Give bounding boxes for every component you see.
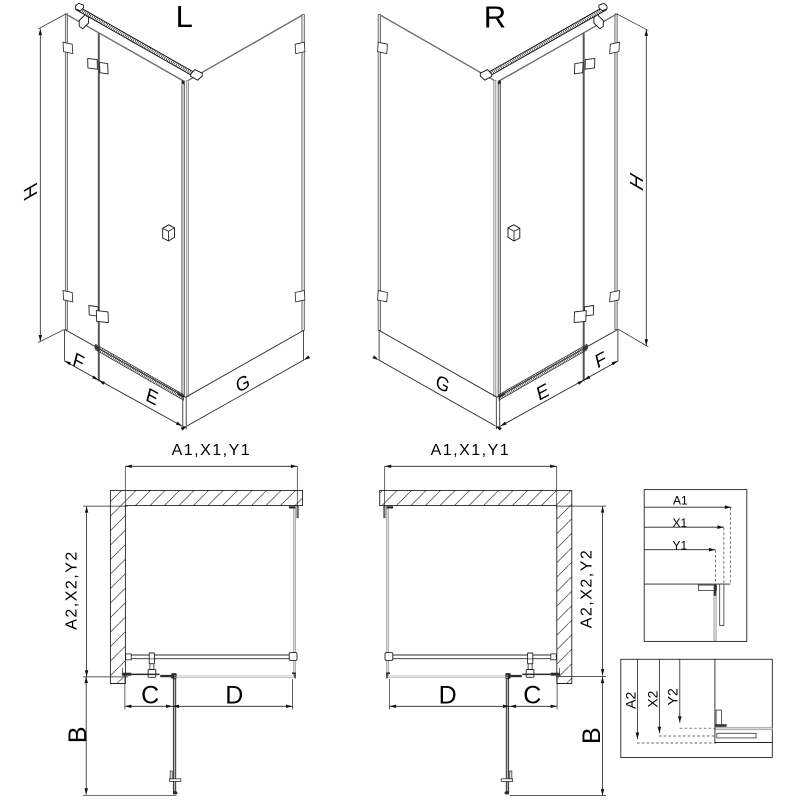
svg-text:C: C: [523, 682, 541, 710]
svg-text:E: E: [535, 380, 551, 406]
svg-text:A2: A2: [622, 692, 638, 709]
svg-text:Y2: Y2: [664, 688, 680, 705]
svg-text:B: B: [64, 726, 92, 743]
svg-text:F: F: [593, 348, 608, 374]
svg-text:G: G: [433, 371, 451, 398]
svg-text:A1,X1,Y1: A1,X1,Y1: [431, 442, 511, 459]
svg-text:A1,X1,Y1: A1,X1,Y1: [172, 442, 252, 459]
svg-text:E: E: [144, 384, 160, 410]
svg-text:H: H: [626, 169, 647, 195]
svg-text:X1: X1: [673, 516, 688, 530]
svg-text:A1: A1: [673, 494, 688, 508]
svg-text:D: D: [439, 682, 457, 710]
svg-text:Y1: Y1: [673, 538, 688, 552]
svg-text:G: G: [234, 371, 252, 398]
svg-text:R: R: [484, 0, 506, 34]
svg-text:C: C: [141, 682, 159, 710]
svg-text:B: B: [578, 727, 606, 744]
svg-text:A2,X2,Y2: A2,X2,Y2: [578, 549, 595, 629]
svg-text:D: D: [225, 682, 243, 710]
svg-text:L: L: [176, 0, 193, 34]
svg-text:H: H: [20, 178, 41, 204]
svg-text:A2,X2,Y2: A2,X2,Y2: [63, 550, 80, 630]
svg-text:X2: X2: [644, 690, 660, 707]
svg-text:F: F: [71, 349, 86, 375]
